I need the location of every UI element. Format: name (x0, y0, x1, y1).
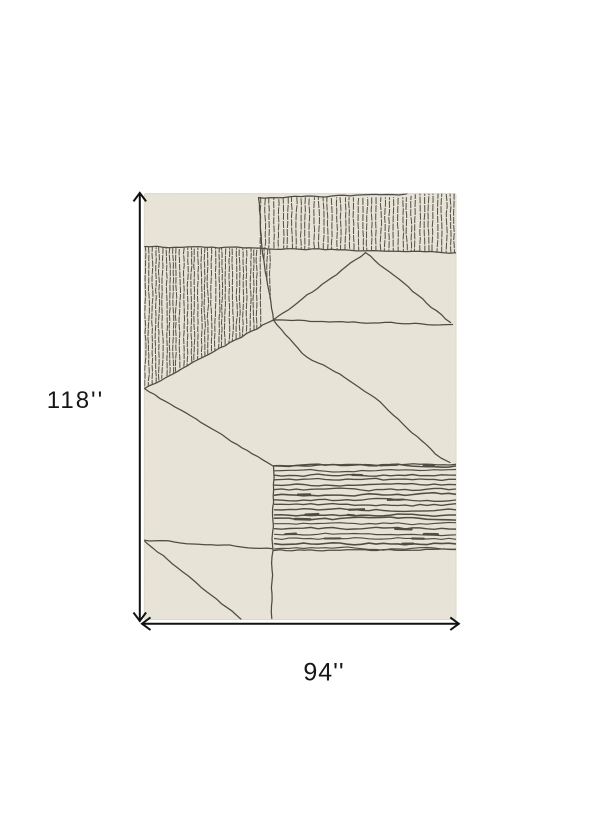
svg-text:94'': 94'' (303, 659, 344, 687)
svg-text:118'': 118'' (47, 387, 104, 414)
